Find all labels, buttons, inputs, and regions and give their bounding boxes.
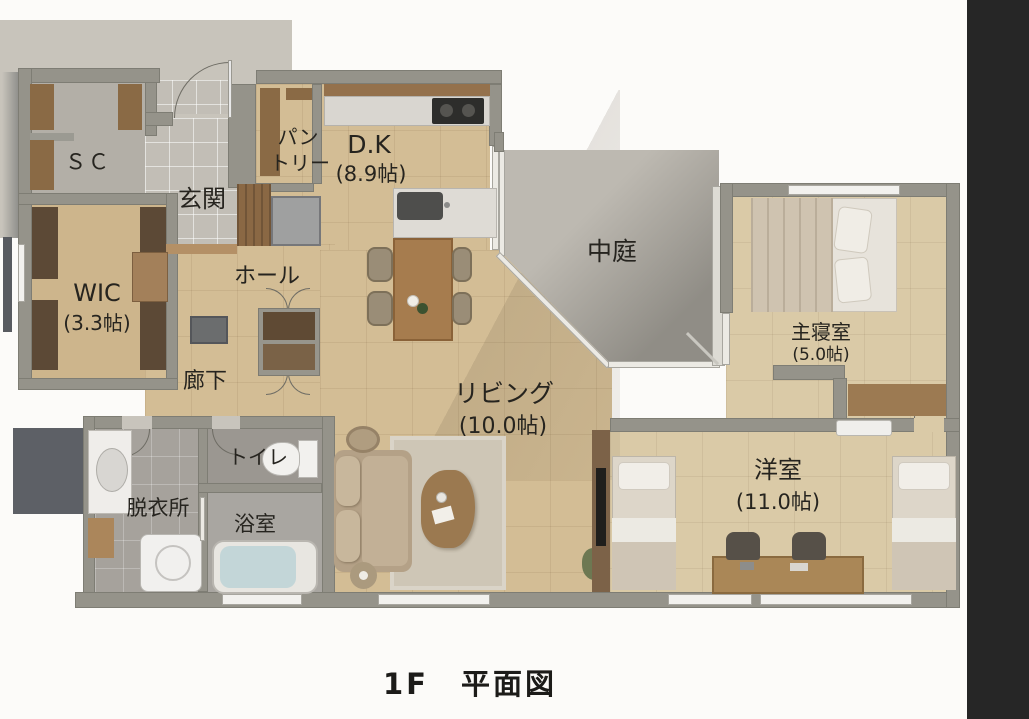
label-wic-size: (3.3帖) [63,312,130,335]
single-bed-right-blanket [892,542,956,590]
dining-chair-left-1 [367,247,393,282]
exterior-shadow-rect [13,428,83,514]
kitchen-counter-wood [324,84,490,96]
tv [596,468,606,546]
label-courtyard: 中庭 [587,238,637,267]
wall-western-top [610,418,960,432]
master-door-gap [914,418,944,432]
label-corridor: 廊下 [183,369,227,394]
exterior-shadow-line [3,237,12,332]
sc-shelf-3 [118,84,142,130]
living-window-bottom [378,594,490,605]
air-conditioner [836,420,892,436]
sofa-back-cushion-1 [336,456,360,506]
courtyard-glass-left [499,150,505,256]
desk-item-2 [790,563,808,571]
master-window-top [788,185,900,195]
corridor-bench [190,316,228,344]
label-pantry-line2: トリー [270,152,330,175]
side-black-strip [967,0,1029,719]
dining-table [393,238,453,341]
floor-plan-canvas: ＳＣ 玄関 パン トリー D.K (8.9帖) 中庭 WIC (3.3帖) ホー… [0,0,1029,719]
entrance-door-leaf [228,60,232,118]
bathtub-water [220,546,296,588]
round-pouf-dot [359,571,368,580]
label-living-size: (10.0帖) [459,414,547,439]
label-western: 洋室 [754,457,802,485]
wall-genkan-pantry [228,84,256,188]
toilet-tank [298,440,318,478]
coffee-table-cup [436,492,447,503]
wine-bottle [417,303,428,314]
wic-shelf-right-2 [140,300,166,370]
double-bed-pillow-1 [833,206,873,254]
toilet-door-gap [212,416,240,429]
dining-chair-right-2 [452,292,472,325]
desk-item-1 [740,562,754,570]
page-title: 1F 平面図 [383,661,557,703]
master-closet-shelf [848,384,946,416]
bath-window-bottom [222,594,302,605]
hall-cabinet-shelf-bottom [263,344,315,370]
label-dressing: 脱衣所 [127,496,190,520]
wic-shelf-left-2 [32,300,58,370]
wall-master-L-vertical [833,378,847,423]
label-genkan: 玄関 [178,186,226,214]
label-dk: D.K [347,131,391,160]
sofa-seat [362,456,408,566]
double-bed-blanket [751,198,833,312]
desk-chair-2 [792,532,826,560]
sc-shelf-1 [30,84,54,130]
desk [712,556,864,594]
island-sink [397,192,443,220]
single-bed-left-blanket [612,542,676,590]
wall-master-left [720,183,733,313]
wall-courtyard-stub [494,132,504,152]
label-dk-size: (8.9帖) [336,162,407,186]
label-western-size: (11.0帖) [736,490,820,514]
single-bed-right-pillow [898,462,950,490]
stove-burner-1 [440,104,453,117]
stove-burner-2 [462,104,475,117]
island-faucet [444,202,450,208]
western-window-bottom-left [668,594,752,605]
washing-machine-door [155,545,191,581]
genkan-shoe-cabinet [237,184,271,246]
label-sc: ＳＣ [65,150,111,174]
label-pantry-line1: パン [278,126,319,149]
wic-shelf-left-1 [32,207,58,279]
wall-sc-wic-divider [18,193,178,205]
refrigerator [271,196,321,246]
label-hall: ホール [234,264,300,289]
dining-chair-right-1 [452,247,472,282]
double-bed-pillow-2 [834,256,872,303]
single-bed-left-band [612,518,676,542]
wall-water-top [83,416,335,429]
wall-wic-bottom [18,378,178,390]
label-living: リビング [454,380,554,409]
dining-chair-left-2 [367,291,393,326]
dressing-bench [88,518,114,558]
single-bed-right-band [892,518,956,542]
wall-genkan-top-left [145,112,173,126]
pantry-shelf-top [286,88,312,100]
hall-cabinet-shelf-top [263,312,315,340]
label-toilet: トイレ [228,446,288,469]
label-master-size: (5.0帖) [792,346,849,366]
wall-sc-top [18,68,160,83]
master-window-left [722,313,730,365]
desk-chair-1 [726,532,760,560]
label-bath: 浴室 [234,512,276,536]
wall-toilet-bath-divider [198,483,322,493]
wall-sc-right [145,82,157,136]
western-window-bottom-right [760,594,912,605]
single-bed-left-pillow [618,462,670,490]
label-wic: WIC [73,280,121,308]
dressing-door-gap [122,416,152,429]
label-master: 主寝室 [791,321,851,344]
bath-glass-door [200,497,205,541]
building-shadow-left [2,72,19,238]
wic-wardrobe [132,252,168,302]
vanity-basin [96,448,128,492]
courtyard-glass-bottom [608,361,720,368]
wall-dk-top [256,70,502,84]
sofa-back-cushion-2 [336,510,360,562]
sc-shelf-2 [30,140,54,190]
basket-pouf [346,426,380,453]
wic-window-left [18,244,25,302]
